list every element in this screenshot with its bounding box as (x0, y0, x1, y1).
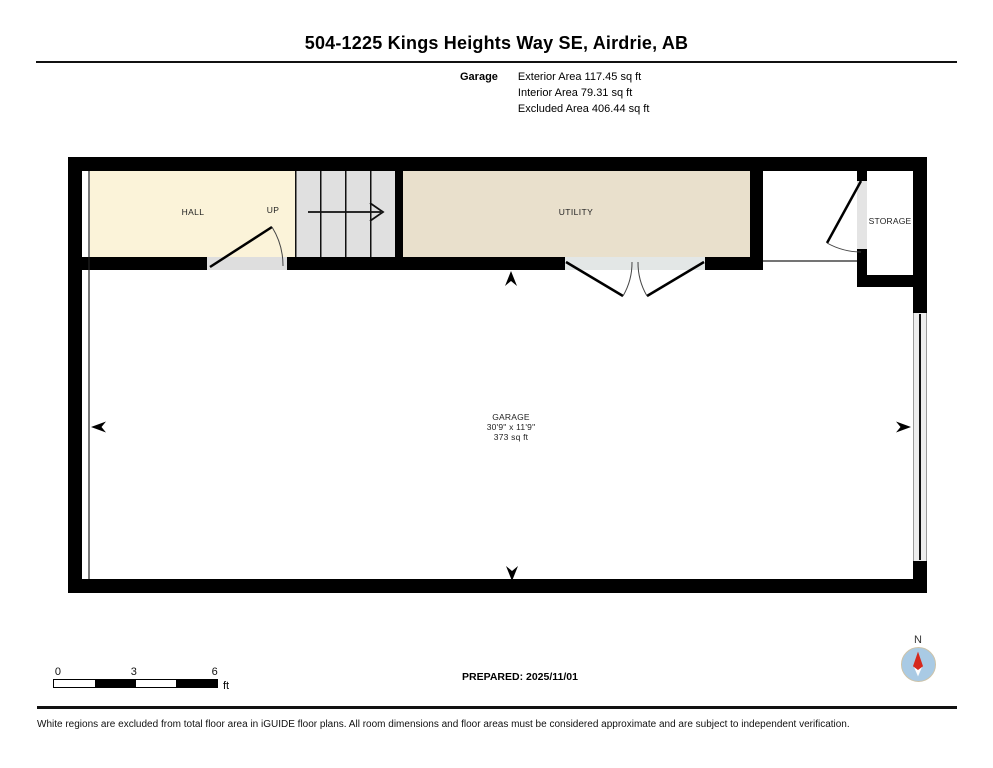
storage-label: STORAGE (862, 216, 918, 226)
floor-label: Garage (460, 69, 498, 117)
scale-ticks: 0 3 6 (53, 666, 218, 679)
room-stairs (295, 171, 395, 257)
wall-segment (857, 275, 913, 287)
door-swing (827, 181, 861, 252)
garage-dimensions: 30'9" x 11'9" (441, 422, 581, 432)
scale-bar-segments (53, 679, 218, 688)
wall-segment (913, 157, 927, 313)
garage-door (913, 313, 927, 561)
wall-segment (750, 157, 763, 270)
title-divider (36, 61, 957, 63)
scale-segment (176, 680, 217, 687)
wall-segment (68, 157, 927, 171)
scale-segment (95, 680, 136, 687)
prepared-date: PREPARED: 2025/11/01 (390, 671, 650, 683)
footer-divider (37, 706, 957, 709)
excluded-area: Excluded Area 406.44 sq ft (518, 101, 649, 117)
scale-bar: 0 3 6 ft (53, 666, 218, 688)
scale-tick: 6 (212, 666, 218, 678)
wall-segment (395, 157, 403, 270)
utility-label: UTILITY (526, 207, 626, 217)
garage-area: 373 sq ft (441, 432, 581, 442)
scale-segment (136, 680, 177, 687)
compass-north-needle (912, 652, 922, 670)
hall-label: HALL (153, 207, 233, 217)
wall-segment (857, 171, 867, 181)
garage-label: GARAGE 30'9" x 11'9" 373 sq ft (441, 412, 581, 442)
dimension-arrow-left-icon (91, 422, 106, 433)
dimension-arrow-up-icon (505, 271, 517, 286)
floorplan-page: 504-1225 Kings Heights Way SE, Airdrie, … (0, 0, 993, 768)
wall-segment (68, 157, 82, 593)
compass-north-label: N (898, 634, 938, 646)
exterior-area: Exterior Area 117.45 sq ft (518, 69, 649, 85)
garage-room-name: GARAGE (441, 412, 581, 422)
scale-tick: 3 (131, 666, 137, 678)
scale-unit: ft (223, 680, 229, 692)
storage-door-opening (857, 181, 867, 249)
scale-tick: 0 (55, 666, 61, 678)
wall-segment (68, 579, 927, 593)
scale-segment (54, 680, 95, 687)
up-label: UP (253, 205, 293, 215)
page-title: 504-1225 Kings Heights Way SE, Airdrie, … (0, 33, 993, 54)
hall-door-opening (207, 257, 287, 270)
interior-area: Interior Area 79.31 sq ft (518, 85, 649, 101)
utility-door-opening (565, 257, 705, 270)
dimension-arrow-right-icon (896, 422, 911, 433)
area-lines: Exterior Area 117.45 sq ft Interior Area… (518, 69, 649, 117)
wall-segment (913, 561, 927, 593)
compass-dial (901, 647, 936, 682)
compass-icon: N (898, 634, 938, 682)
disclaimer-text: White regions are excluded from total fl… (37, 719, 967, 730)
area-summary: Garage Exterior Area 117.45 sq ft Interi… (460, 69, 649, 117)
